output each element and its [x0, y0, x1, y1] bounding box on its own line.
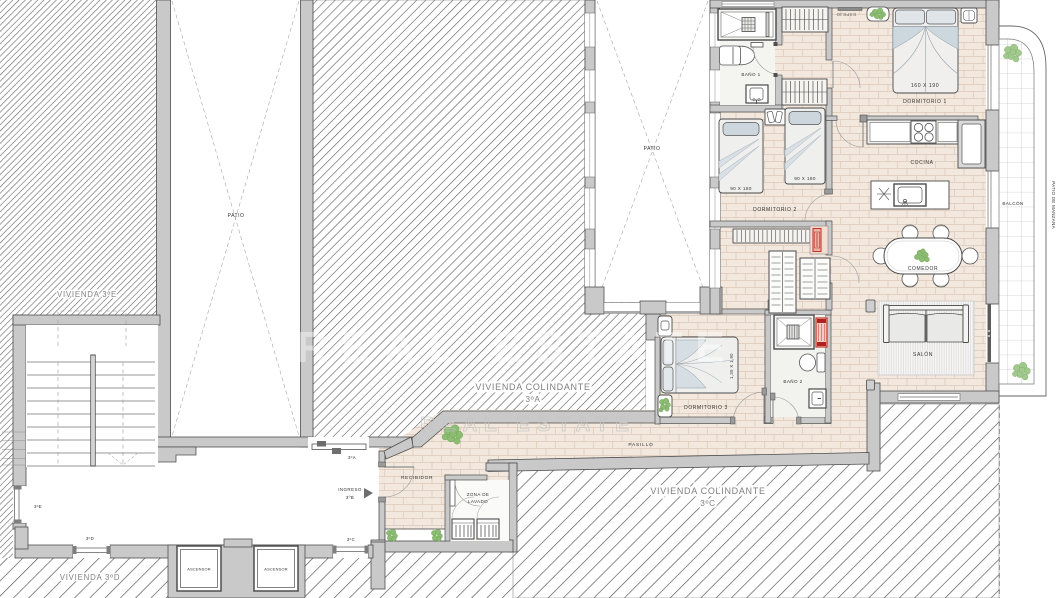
svg-text:3ºB: 3ºB	[346, 495, 354, 500]
svg-text:VIVIENDA 3ºE: VIVIENDA 3ºE	[57, 290, 117, 299]
svg-text:PATIO: PATIO	[228, 213, 245, 219]
svg-text:VIVIENDA COLINDANTE: VIVIENDA COLINDANTE	[650, 486, 765, 496]
svg-text:90 X 180: 90 X 180	[794, 176, 816, 181]
svg-text:ZONA DE: ZONA DE	[467, 492, 490, 497]
svg-text:REAL ESTATE: REAL ESTATE	[296, 323, 737, 372]
svg-text:RECIBIDOR: RECIBIDOR	[401, 475, 433, 481]
svg-text:SALÓN: SALÓN	[913, 351, 933, 358]
svg-text:ASCENSOR: ASCENSOR	[187, 567, 210, 572]
svg-text:DORMITORIO 2: DORMITORIO 2	[753, 207, 797, 213]
svg-text:90 X 180: 90 X 180	[730, 186, 752, 191]
svg-text:BALCÓN: BALCÓN	[1002, 200, 1023, 206]
svg-text:PATIO: PATIO	[644, 146, 661, 152]
svg-text:COMEDOR: COMEDOR	[908, 266, 938, 272]
svg-text:3ºE: 3ºE	[34, 504, 42, 509]
svg-text:BAÑO 2: BAÑO 2	[783, 378, 802, 384]
svg-text:DORMITORIO 3: DORMITORIO 3	[684, 405, 728, 411]
svg-text:3ºA: 3ºA	[525, 395, 540, 404]
svg-text:COCINA: COCINA	[910, 160, 933, 166]
svg-text:PATIO DE MANZANA: PATIO DE MANZANA	[1051, 181, 1056, 229]
svg-text:DORMITORIO 1: DORMITORIO 1	[903, 99, 947, 105]
svg-text:3ºC: 3ºC	[347, 537, 355, 542]
svg-text:ASCENSOR: ASCENSOR	[264, 567, 287, 572]
svg-text:INGRESO: INGRESO	[338, 487, 362, 492]
svg-text:BAÑO 1: BAÑO 1	[741, 71, 760, 77]
svg-text:160 X 190: 160 X 190	[911, 83, 939, 89]
svg-text:PASILLO: PASILLO	[628, 442, 653, 448]
svg-text:LAVADO: LAVADO	[468, 499, 488, 504]
svg-text:VIVIENDA COLINDANTE: VIVIENDA COLINDANTE	[475, 382, 590, 392]
svg-text:REAL ESTATE: REAL ESTATE	[420, 413, 636, 436]
svg-text:3ºD: 3ºD	[86, 536, 94, 541]
svg-text:3ºA: 3ºA	[348, 455, 356, 460]
svg-text:ESPEJO: ESPEJO	[836, 12, 856, 17]
svg-text:VIVIENDA 3ºD: VIVIENDA 3ºD	[60, 573, 121, 582]
svg-text:3ºC: 3ºC	[700, 499, 716, 508]
